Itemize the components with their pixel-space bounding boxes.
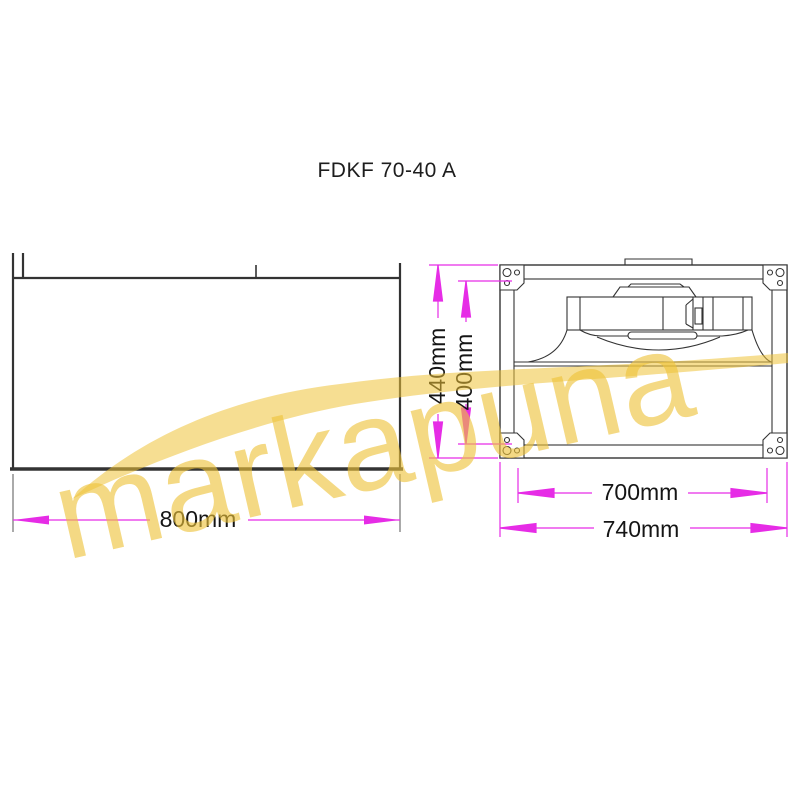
dimension-arrow-right [751,524,787,533]
terminal-box [625,259,692,265]
corner-plate-top-left [500,265,524,290]
dimension-arrow-right [731,489,767,498]
inlet-lip [628,332,697,339]
motor-mount [613,287,696,297]
drawing-canvas: FDKF 70-40 A [0,0,800,800]
motor-hub [695,308,702,324]
corner-plate-top-right [763,265,787,290]
technical-drawing [0,0,800,800]
dim-label-400: 400mm [451,302,477,442]
dim-label-800: 800mm [137,506,259,532]
dim-label-440: 440mm [424,296,450,436]
dimension-arrow-left [518,489,554,498]
front-view-drawing [500,259,787,458]
corner-plate-bottom-left [500,433,524,458]
corner-plate-bottom-right [763,433,787,458]
dimension-arrow-left [500,524,536,533]
dim-label-700: 700mm [580,479,700,505]
dim-label-740: 740mm [581,516,701,542]
fan-impeller-band [567,297,752,330]
fan-scroll [528,330,771,362]
dimension-arrow-left [13,516,49,525]
side-view-drawing [10,253,403,470]
dimension-arrow-right [364,516,400,525]
